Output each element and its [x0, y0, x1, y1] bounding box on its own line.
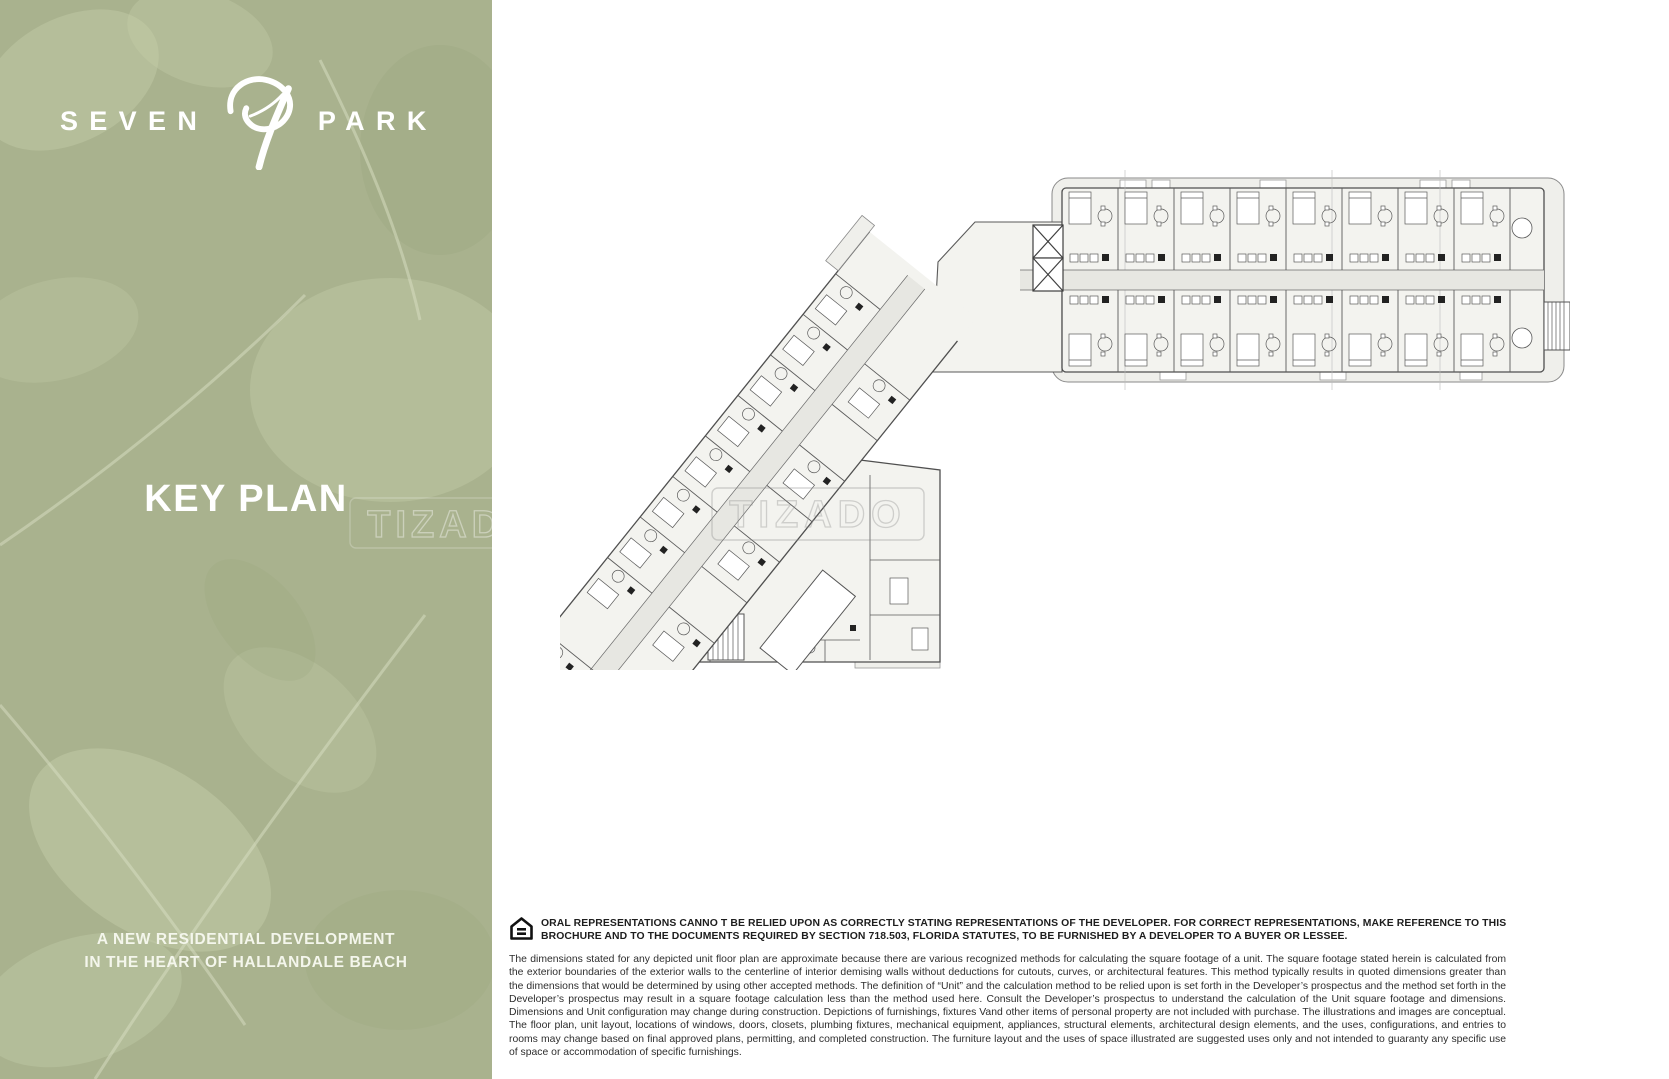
tizado-watermark-plan: TIZADO [712, 488, 924, 540]
east-wing [1020, 170, 1570, 390]
tagline-line-1: A NEW RESIDENTIAL DEVELOPMENT [0, 928, 492, 951]
east-stairs [1544, 302, 1570, 350]
leaf-seven-monogram-icon [220, 72, 300, 170]
svg-text:TIZADO: TIZADO [367, 504, 492, 546]
dimensions-disclaimer: The dimensions stated for any depicted u… [509, 953, 1506, 1059]
equal-housing-opportunity-icon [509, 917, 534, 940]
left-brand-panel: SEVEN PARK KEY PLAN TIZADO A NEW RESIDEN… [0, 0, 492, 1079]
tagline-line-2: IN THE HEART OF HALLANDALE BEACH [0, 951, 492, 974]
brand-logo: SEVEN PARK [0, 72, 492, 170]
oral-representations-notice: ORAL REPRESENTATIONS CANNO T BE RELIED U… [541, 918, 1519, 943]
key-plan-floorplan: TIZADO [560, 170, 1570, 670]
brand-name-right: PARK [312, 106, 438, 137]
elevator-core [1033, 225, 1063, 291]
svg-text:TIZADO: TIZADO [729, 494, 906, 536]
tizado-watermark: TIZADO [348, 492, 492, 552]
brand-name-left: SEVEN [54, 106, 208, 137]
development-tagline: A NEW RESIDENTIAL DEVELOPMENT IN THE HEA… [0, 928, 492, 974]
brochure-page: SEVEN PARK KEY PLAN TIZADO A NEW RESIDEN… [0, 0, 1669, 1079]
